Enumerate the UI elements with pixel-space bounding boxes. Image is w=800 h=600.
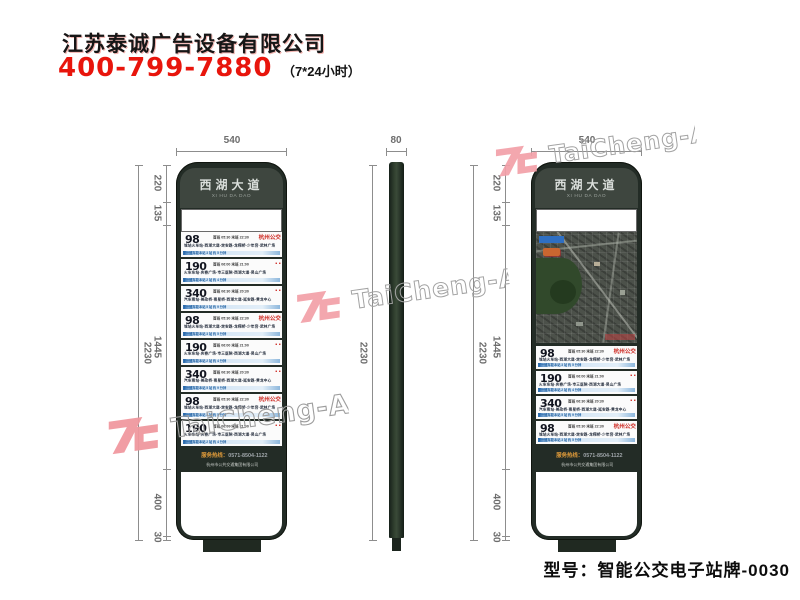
bus-route-card: 190 首班 06:00 末班 21:00 ▪ ▪ 火车东站-庆春广场-市三医院…: [181, 421, 282, 446]
route-operator-mark: ▪ ▪: [275, 368, 281, 374]
sign-side-profile: [389, 162, 404, 538]
side-width-dimension-line: [386, 151, 407, 152]
route-status-text: 下一班车距本站 2 站 约 4 分钟: [183, 278, 222, 282]
route-service-times: 首班 06:30 末班 20:30: [213, 289, 281, 294]
route-operator-mark: 杭州公交: [614, 347, 636, 355]
station-name: 西湖大道: [535, 168, 638, 193]
right-width-dimension-label: 540: [567, 135, 607, 146]
route-status-strip: 下一班车距本站 2 站 约 4 分钟: [183, 440, 280, 445]
route-status-text: 下一班车距本站 5 站 约 9 分钟: [183, 386, 222, 390]
bus-route-card: 98 首班 05:30 末班 22:30 杭州公交 城站火车站-西湖大道-定安路…: [181, 232, 282, 257]
route-operator-mark: 杭州公交: [259, 233, 281, 241]
right-total-height-label: 2230: [477, 342, 488, 364]
segment-label-1445: 1445: [491, 336, 502, 358]
service-hotline-number: 0571-8504-1122: [228, 452, 267, 458]
service-hotline-label: 服务热线：: [556, 452, 583, 458]
bus-route-card: 98 首班 05:30 末班 22:30 杭州公交 城站火车站-西湖大道-定安路…: [181, 394, 282, 419]
right-total-height-dimension-line: 2230: [473, 165, 474, 541]
left-segment-dimension-line: 220 135 1445 400 30: [166, 165, 167, 541]
bus-route-card: 190 首班 06:00 末班 21:00 ▪ ▪ 火车东站-庆春广场-市三医院…: [181, 340, 282, 365]
bus-route-card: 340 首班 06:30 末班 20:30 ▪ ▪ 汽车南站-美政桥-南星桥-西…: [181, 367, 282, 392]
bus-route-card: 98 首班 05:30 末班 22:30 杭州公交 城站火车站-西湖大道-定安路…: [181, 313, 282, 338]
led-display-panel: [181, 209, 282, 232]
route-station-list: 城站火车站-西湖大道-定安路-龙翔桥-少年宫-武林广场: [184, 324, 282, 329]
segment-label-220: 220: [152, 175, 163, 192]
bus-stop-sign-front-view: 西湖大道 XI HU DA DAO 98 首班 05:30 末班 22:30 杭…: [176, 162, 287, 540]
segment-label-1445: 1445: [152, 336, 163, 358]
service-hotline-row: 服务热线：0571-8504-1122: [201, 451, 262, 459]
route-status-text: 下一班车距本站 3 站 约 5 分钟: [538, 363, 577, 367]
sign-inner: 西湖大道 XI HU DA DAO 9: [535, 166, 638, 536]
operator-company-text: 杭州市公共交通集团有限公司: [206, 462, 257, 468]
segment-label-220: 220: [491, 175, 502, 192]
route-status-text: 下一班车距本站 2 站 约 4 分钟: [183, 359, 222, 363]
side-height-dimension-line: 2230: [372, 165, 373, 541]
route-operator-mark: ▪ ▪: [275, 422, 281, 428]
map-building-speck: [620, 290, 625, 295]
bus-route-card: 98 首班 05:30 末班 22:30 杭州公交 城站火车站-西湖大道-定安路…: [536, 346, 637, 369]
taicheng-logo-icon: [291, 282, 348, 329]
hotline-number: 400-799-7880: [58, 53, 273, 83]
route-station-list: 火车东站-庆春广场-市三医院-西湖大道-吴山广场: [184, 351, 282, 356]
route-service-times: 首班 06:00 末班 21:00: [568, 374, 636, 379]
segment-label-135: 135: [152, 205, 163, 222]
route-status-text: 下一班车距本站 2 站 约 4 分钟: [183, 440, 222, 444]
side-width-dimension-label: 80: [376, 135, 416, 146]
route-status-text: 下一班车距本站 3 站 约 5 分钟: [183, 413, 222, 417]
route-status-text: 下一班车距本站 5 站 约 9 分钟: [183, 305, 222, 309]
operator-company-text: 杭州市公共交通集团有限公司: [561, 462, 612, 468]
map-park-shadow: [550, 280, 576, 304]
map-building-speck: [576, 322, 583, 326]
route-status-strip: 下一班车距本站 3 站 约 5 分钟: [183, 332, 280, 337]
bus-route-card: 340 首班 06:30 末班 20:30 ▪ ▪ 汽车南站-美政桥-南星桥-西…: [181, 286, 282, 311]
map-orange-marker: [543, 248, 560, 256]
route-station-list: 火车东站-庆春广场-市三医院-西湖大道-吴山广场: [539, 382, 637, 387]
spec-sheet-page: 江苏泰诚广告设备有限公司 400-799-7880 （7*24小时） 540 2…: [0, 0, 800, 600]
station-name: 西湖大道: [180, 168, 283, 193]
route-operator-mark: ▪ ▪: [275, 260, 281, 266]
dimension-tick: [502, 225, 510, 226]
sign-header: 西湖大道 XI HU DA DAO: [535, 168, 638, 208]
service-hotline-number: 0571-8504-1122: [583, 452, 622, 458]
segment-label-400: 400: [152, 494, 163, 511]
dimension-tick: [163, 536, 171, 537]
service-hotline-row: 服务热线：0571-8504-1122: [556, 451, 617, 459]
route-operator-mark: ▪ ▪: [275, 287, 281, 293]
sign-side-foot: [392, 538, 401, 551]
route-station-list: 汽车南站-美政桥-南星桥-西湖大道-延安路-黄龙中心: [184, 378, 282, 383]
segment-label-30: 30: [152, 531, 163, 542]
route-status-strip: 下一班车距本站 3 站 约 5 分钟: [183, 251, 280, 256]
station-name-pinyin: XI HU DA DAO: [556, 193, 618, 198]
left-width-dimension-label: 540: [212, 135, 252, 146]
segment-label-135: 135: [491, 205, 502, 222]
route-operator-mark: ▪ ▪: [630, 372, 636, 378]
dimension-tick: [502, 536, 510, 537]
route-station-list: 火车东站-庆春广场-市三医院-西湖大道-吴山广场: [184, 270, 282, 275]
route-status-strip: 下一班车距本站 5 站 约 9 分钟: [183, 305, 280, 310]
route-station-list: 汽车南站-美政桥-南星桥-西湖大道-延安路-黄龙中心: [184, 297, 282, 302]
route-station-list: 城站火车站-西湖大道-定安路-龙翔桥-少年宫-武林广场: [184, 405, 282, 410]
side-height-label: 2230: [358, 342, 369, 364]
route-station-list: 城站火车站-西湖大道-定安路-龙翔桥-少年宫-武林广场: [539, 357, 637, 362]
map-building-speck: [594, 262, 600, 266]
map-road: [602, 232, 619, 342]
lower-blank-panel: [181, 472, 282, 536]
route-service-times: 首班 06:30 末班 20:30: [213, 370, 281, 375]
dimension-tick: [502, 469, 510, 470]
watermark-text: TaiCheng-AD: [350, 261, 511, 315]
bus-route-card: 340 首班 06:30 末班 20:30 ▪ ▪ 汽车南站-美政桥-南星桥-西…: [536, 396, 637, 419]
route-operator-mark: 杭州公交: [259, 314, 281, 322]
route-status-strip: 下一班车距本站 3 站 约 5 分钟: [183, 413, 280, 418]
sign-base-pedestal: [558, 540, 616, 552]
route-status-strip: 下一班车距本站 3 站 约 5 分钟: [538, 363, 635, 368]
bus-route-card: 190 首班 06:00 末班 21:00 ▪ ▪ 火车东站-庆春广场-市三医院…: [181, 259, 282, 284]
station-name-pinyin: XI HU DA DAO: [201, 193, 263, 198]
sign-footer-bar: 服务热线：0571-8504-1122 杭州市公共交通集团有限公司: [536, 449, 637, 470]
sign-footer-bar: 服务热线：0571-8504-1122 杭州市公共交通集团有限公司: [181, 449, 282, 470]
route-service-times: 首班 06:00 末班 21:00: [213, 262, 281, 267]
sign-base-pedestal: [203, 540, 261, 552]
led-display-panel: [536, 209, 637, 232]
route-service-times: 首班 06:00 末班 21:00: [213, 424, 281, 429]
route-status-strip: 下一班车距本站 2 站 约 4 分钟: [183, 278, 280, 283]
sign-header: 西湖大道 XI HU DA DAO: [180, 168, 283, 208]
satellite-map-panel: [536, 232, 637, 343]
route-card-list: 98 首班 05:30 末班 22:30 杭州公交 城站火车站-西湖大道-定安路…: [536, 346, 637, 444]
hotline-hours: （7*24小时）: [282, 64, 361, 79]
company-contact-row: 400-799-7880 （7*24小时）: [58, 53, 361, 83]
right-width-dimension-line: [531, 151, 642, 152]
service-hotline-label: 服务热线：: [201, 452, 228, 458]
route-station-list: 汽车南站-美政桥-南星桥-西湖大道-延安路-黄龙中心: [539, 407, 637, 412]
bus-route-card: 190 首班 06:00 末班 21:00 ▪ ▪ 火车东站-庆春广场-市三医院…: [536, 371, 637, 394]
segment-label-400: 400: [491, 494, 502, 511]
route-status-strip: 下一班车距本站 3 站 约 5 分钟: [538, 438, 635, 443]
dimension-tick: [163, 469, 171, 470]
route-station-list: 火车东站-庆春广场-市三医院-西湖大道-吴山广场: [184, 432, 282, 437]
route-status-text: 下一班车距本站 2 站 约 4 分钟: [538, 388, 577, 392]
route-status-text: 下一班车距本站 3 站 约 5 分钟: [538, 438, 577, 442]
sign-inner: 西湖大道 XI HU DA DAO 98 首班 05:30 末班 22:30 杭…: [180, 166, 283, 536]
route-operator-mark: 杭州公交: [614, 422, 636, 430]
route-card-list: 98 首班 05:30 末班 22:30 杭州公交 城站火车站-西湖大道-定安路…: [181, 232, 282, 446]
model-number-label: 型号：智能公交电子站牌-0030: [544, 556, 790, 581]
dimension-tick: [163, 202, 171, 203]
route-service-times: 首班 06:00 末班 21:00: [213, 343, 281, 348]
route-operator-mark: ▪ ▪: [630, 397, 636, 403]
route-status-strip: 下一班车距本站 5 站 约 9 分钟: [538, 413, 635, 418]
lower-blank-panel: [536, 472, 637, 536]
map-red-zone: [605, 334, 635, 340]
bus-route-card: 98 首班 05:30 末班 22:30 杭州公交 城站火车站-西湖大道-定安路…: [536, 421, 637, 444]
route-service-times: 首班 06:30 末班 20:30: [568, 399, 636, 404]
left-total-height-dimension-line: 2230: [138, 165, 139, 541]
route-status-text: 下一班车距本站 5 站 约 9 分钟: [538, 413, 577, 417]
bus-stop-sign-front-view-with-map: 西湖大道 XI HU DA DAO 9: [531, 162, 642, 540]
route-station-list: 城站火车站-西湖大道-定安路-龙翔桥-少年宫-武林广场: [184, 243, 282, 248]
route-status-strip: 下一班车距本站 5 站 约 9 分钟: [183, 386, 280, 391]
left-width-dimension-line: [176, 151, 287, 152]
route-station-list: 城站火车站-西湖大道-定安路-龙翔桥-少年宫-武林广场: [539, 432, 637, 437]
route-status-text: 下一班车距本站 3 站 约 5 分钟: [183, 332, 222, 336]
dimension-tick: [163, 225, 171, 226]
route-status-text: 下一班车距本站 3 站 约 5 分钟: [183, 251, 222, 255]
taicheng-logo-icon: [102, 407, 168, 461]
route-status-strip: 下一班车距本站 2 站 约 4 分钟: [538, 388, 635, 393]
route-status-strip: 下一班车距本站 2 站 约 4 分钟: [183, 359, 280, 364]
right-segment-dimension-line: 220 135 1445 400 30: [505, 165, 506, 541]
route-operator-mark: 杭州公交: [259, 395, 281, 403]
segment-label-30: 30: [491, 531, 502, 542]
dimension-tick: [502, 202, 510, 203]
map-blue-label: [539, 236, 564, 243]
route-operator-mark: ▪ ▪: [275, 341, 281, 347]
